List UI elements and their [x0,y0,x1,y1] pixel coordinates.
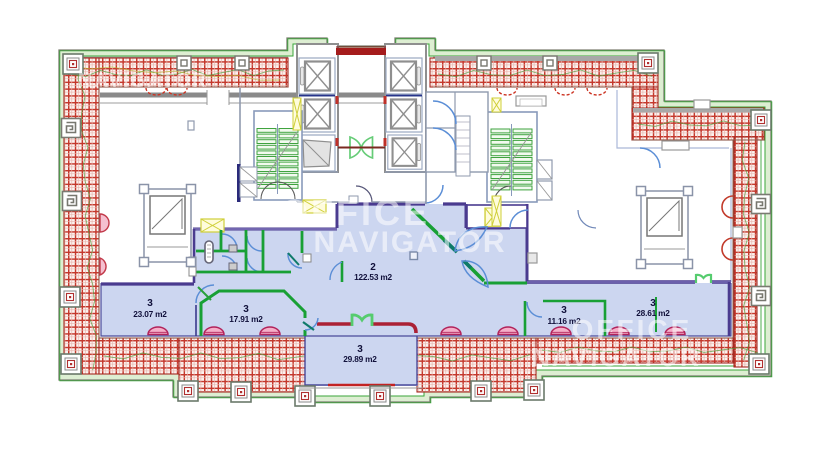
svg-text:NAVIGATOR: NAVIGATOR [78,70,208,92]
svg-text:23.07 m2: 23.07 m2 [133,309,167,319]
svg-text:122.53 m2: 122.53 m2 [354,272,392,282]
svg-text:NAVIGATOR: NAVIGATOR [313,226,506,259]
svg-text:NAVIGATOR: NAVIGATOR [531,342,701,372]
svg-text:17.91 m2: 17.91 m2 [229,314,263,324]
svg-text:OFFICE: OFFICE [572,314,693,345]
svg-text:3: 3 [561,305,567,316]
svg-text:29.89 m2: 29.89 m2 [343,354,377,364]
svg-text:3: 3 [147,298,153,309]
